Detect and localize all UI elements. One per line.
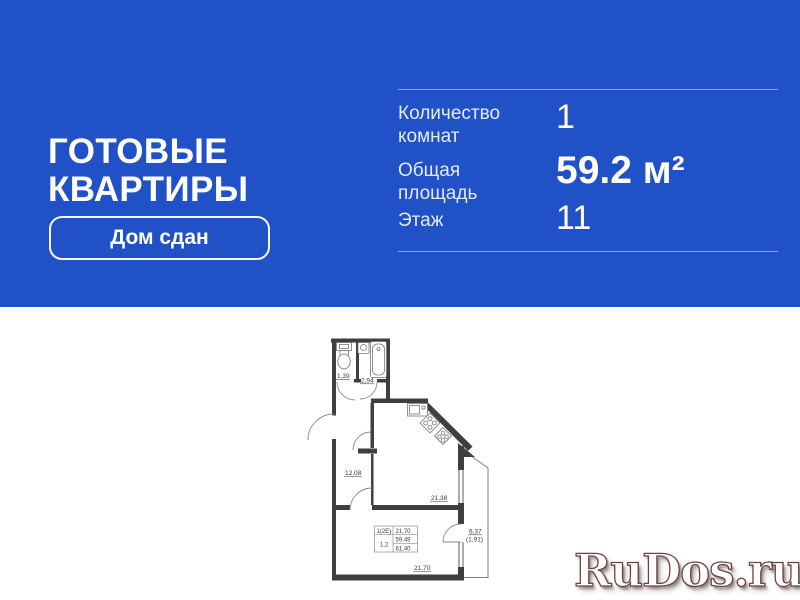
wc-area-label: 1,39 (337, 373, 350, 380)
floorplan: 1,39 2,94 12,08 21,38 21,70 6,37 (1,91) … (295, 330, 595, 600)
bath-fixtures (358, 342, 387, 378)
table-total-area: 61,40 (396, 546, 412, 552)
house-ready-badge[interactable]: Дом сдан (49, 216, 270, 260)
room-area-label: 21,70 (414, 565, 431, 572)
banner: ГОТОВЫЕ КВАРТИРЫ Дом сдан Количество ком… (0, 0, 800, 307)
area-label: Общая площадь (398, 159, 477, 205)
title-line-1: ГОТОВЫЕ (48, 133, 248, 171)
rooms-value: 1 (556, 99, 575, 135)
floor-value: 11 (556, 200, 591, 236)
table-area-2: 59,49 (396, 538, 412, 544)
hall-area-label: 12,08 (345, 470, 362, 477)
area-table: 1(2Е) 21,70 59,49 1.2 61,40 (375, 526, 418, 552)
title-line-2: КВАРТИРЫ (48, 171, 248, 209)
balcony-area-label: 6,37 (469, 529, 482, 536)
table-flat-type: 1(2Е) (377, 529, 392, 535)
divider-bottom (398, 251, 778, 252)
page-title: ГОТОВЫЕ КВАРТИРЫ (48, 133, 248, 209)
floor-label: Этаж (398, 209, 443, 232)
rooms-label: Количество комнат (398, 102, 500, 148)
bath-area-label: 2,94 (361, 378, 374, 385)
stats-panel: Количество комнат 1 Общая площадь 59.2 м… (398, 0, 778, 307)
wc-fixtures (337, 343, 352, 370)
balcony-outline (464, 451, 488, 578)
kitchen-area-label: 21,38 (431, 495, 448, 502)
divider-top (398, 89, 778, 90)
table-living-area: 21,70 (396, 529, 412, 535)
area-value: 59.2 м² (556, 151, 685, 191)
rudos-watermark-link[interactable]: RuDos.ru (574, 544, 800, 597)
table-flat-num: 1.2 (380, 543, 389, 549)
balcony-reduced-label: (1,91) (466, 537, 483, 544)
door-arcs (308, 382, 461, 542)
flyer: ГОТОВЫЕ КВАРТИРЫ Дом сдан Количество ком… (0, 0, 800, 600)
